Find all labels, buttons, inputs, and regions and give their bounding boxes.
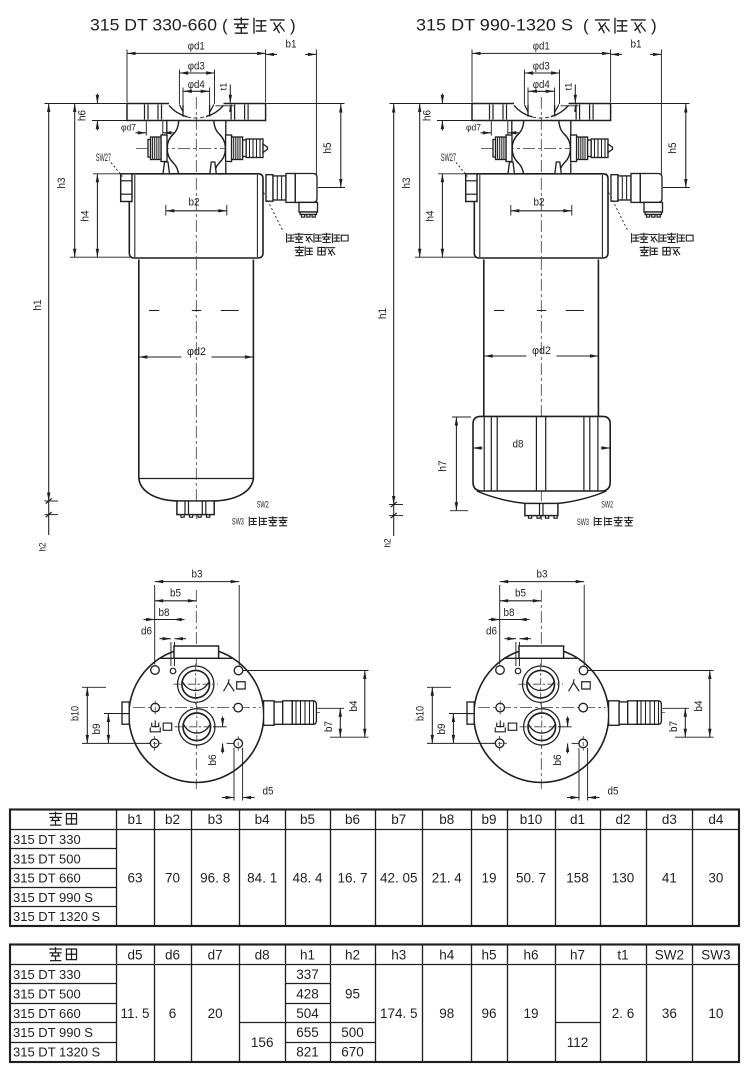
svg-text:b8: b8: [439, 812, 454, 827]
svg-text:315 DT 990 S: 315 DT 990 S: [13, 1025, 93, 1040]
svg-text:98: 98: [439, 1006, 454, 1021]
svg-text:φd1: φd1: [533, 41, 550, 53]
svg-text:(: (: [222, 16, 228, 35]
svg-text:6: 6: [169, 1006, 177, 1021]
svg-text:h7: h7: [570, 948, 585, 963]
svg-text:504: 504: [296, 1006, 319, 1021]
svg-text:11. 5: 11. 5: [120, 1006, 149, 1021]
svg-text:b5: b5: [300, 812, 315, 827]
svg-text:d6: d6: [141, 625, 152, 637]
svg-text:SW2: SW2: [601, 499, 613, 509]
svg-text:b10: b10: [520, 812, 543, 827]
svg-text:315 DT 660: 315 DT 660: [13, 1006, 81, 1021]
svg-text:h2: h2: [345, 948, 360, 963]
svg-text:156: 156: [251, 1035, 274, 1050]
svg-text:315 DT 330: 315 DT 330: [13, 832, 81, 847]
svg-text:337: 337: [296, 967, 319, 982]
svg-text:16. 7: 16. 7: [337, 870, 367, 885]
svg-text:b2: b2: [189, 197, 200, 209]
svg-text:h4: h4: [80, 211, 92, 222]
svg-text:b8: b8: [159, 607, 170, 619]
svg-text:SW2: SW2: [655, 948, 684, 963]
svg-text:b5: b5: [515, 588, 526, 600]
svg-text:315 DT 1320 S: 315 DT 1320 S: [13, 909, 101, 924]
svg-text:φd4: φd4: [533, 79, 550, 91]
svg-text:φd3: φd3: [533, 61, 550, 73]
svg-text:h1: h1: [32, 300, 44, 311]
svg-text:20: 20: [208, 1006, 223, 1021]
svg-text:d5: d5: [608, 786, 619, 798]
svg-text:b3: b3: [192, 569, 203, 581]
svg-text:d5: d5: [127, 948, 142, 963]
svg-text:SW3: SW3: [232, 517, 244, 527]
svg-text:(: (: [583, 16, 589, 35]
svg-text:315 DT 990 S: 315 DT 990 S: [13, 890, 93, 905]
svg-text:φd2: φd2: [187, 346, 206, 358]
svg-text:36: 36: [662, 1006, 677, 1021]
svg-text:315 DT 500: 315 DT 500: [13, 986, 81, 1001]
svg-text:b6: b6: [207, 755, 219, 766]
svg-text:428: 428: [296, 986, 319, 1001]
svg-text:b1: b1: [286, 39, 297, 51]
svg-text:84. 1: 84. 1: [247, 870, 277, 885]
svg-text:d8: d8: [513, 439, 524, 451]
svg-text:d2: d2: [615, 812, 630, 827]
svg-text:b10: b10: [415, 706, 427, 721]
svg-text:b10: b10: [70, 706, 82, 721]
svg-text:d7: d7: [208, 948, 223, 963]
svg-text:t1: t1: [617, 948, 628, 963]
svg-text:d1: d1: [570, 812, 585, 827]
svg-text:h5: h5: [322, 143, 334, 154]
svg-text:b9: b9: [436, 724, 448, 735]
svg-text:158: 158: [566, 870, 589, 885]
svg-text:b2: b2: [534, 197, 545, 209]
svg-text:70: 70: [165, 870, 180, 885]
svg-text:50. 7: 50. 7: [516, 870, 546, 885]
svg-text:t1: t1: [564, 83, 574, 91]
svg-text:φd1: φd1: [188, 41, 205, 53]
svg-text:h4: h4: [425, 211, 437, 222]
svg-text:h5: h5: [667, 143, 679, 154]
svg-text:h2: h2: [383, 539, 393, 548]
svg-text:2. 6: 2. 6: [612, 1006, 635, 1021]
svg-text:h2: h2: [38, 543, 48, 552]
svg-text:b5: b5: [170, 588, 181, 600]
svg-text:SW3: SW3: [701, 948, 730, 963]
svg-text:95: 95: [345, 986, 360, 1001]
svg-text:b7: b7: [323, 721, 335, 732]
svg-text:96. 8: 96. 8: [200, 870, 230, 885]
svg-text:b1: b1: [127, 812, 142, 827]
svg-text:b3: b3: [537, 569, 548, 581]
svg-text:): ): [651, 16, 657, 35]
svg-text:h3: h3: [401, 178, 413, 189]
svg-text:21. 4: 21. 4: [432, 870, 463, 885]
svg-text:): ): [290, 16, 296, 35]
svg-text:φd2: φd2: [532, 345, 551, 357]
svg-text:d8: d8: [255, 948, 270, 963]
svg-text:d6: d6: [486, 625, 497, 637]
svg-text:h1: h1: [300, 948, 315, 963]
svg-text:96: 96: [481, 1006, 496, 1021]
svg-text:b6: b6: [552, 755, 564, 766]
svg-text:SW27: SW27: [441, 152, 456, 164]
svg-text:b3: b3: [208, 812, 223, 827]
svg-text:41: 41: [662, 870, 677, 885]
svg-text:130: 130: [612, 870, 635, 885]
svg-text:315 DT 990-1320 S: 315 DT 990-1320 S: [416, 16, 573, 35]
svg-text:h6: h6: [77, 110, 89, 121]
svg-text:b6: b6: [345, 812, 360, 827]
svg-text:h6: h6: [422, 110, 434, 121]
svg-text:d6: d6: [165, 948, 180, 963]
svg-text:h3: h3: [56, 178, 68, 189]
svg-text:670: 670: [341, 1045, 364, 1060]
svg-text:t1: t1: [219, 83, 229, 91]
svg-text:b7: b7: [668, 721, 680, 732]
svg-text:h3: h3: [391, 948, 406, 963]
svg-text:63: 63: [127, 870, 142, 885]
svg-text:655: 655: [296, 1025, 319, 1040]
svg-text:d4: d4: [708, 812, 724, 827]
svg-text:b8: b8: [504, 607, 515, 619]
svg-text:b4: b4: [348, 701, 360, 712]
svg-text:φd3: φd3: [188, 61, 205, 73]
svg-text:19: 19: [481, 870, 496, 885]
svg-text:174. 5: 174. 5: [380, 1006, 418, 1021]
svg-text:φd7: φd7: [121, 122, 136, 132]
svg-text:φd7: φd7: [466, 122, 481, 132]
svg-text:b2: b2: [165, 812, 180, 827]
svg-text:h5: h5: [481, 948, 496, 963]
svg-text:h1: h1: [377, 308, 389, 319]
svg-text:b4: b4: [255, 812, 271, 827]
svg-text:φd4: φd4: [188, 79, 205, 91]
svg-text:SW2: SW2: [257, 499, 269, 509]
svg-text:b4: b4: [693, 701, 705, 712]
svg-text:315 DT 1320 S: 315 DT 1320 S: [13, 1045, 101, 1060]
svg-text:10: 10: [708, 1006, 723, 1021]
svg-text:b9: b9: [481, 812, 496, 827]
svg-text:19: 19: [523, 1006, 538, 1021]
svg-text:315 DT 330-660: 315 DT 330-660: [90, 16, 217, 35]
svg-text:h6: h6: [523, 948, 538, 963]
svg-text:d3: d3: [662, 812, 677, 827]
svg-text:315 DT 500: 315 DT 500: [13, 851, 81, 866]
svg-text:42. 05: 42. 05: [380, 870, 418, 885]
svg-text:h4: h4: [439, 948, 455, 963]
svg-text:d5: d5: [263, 786, 274, 798]
svg-text:SW27: SW27: [96, 152, 111, 164]
svg-text:500: 500: [341, 1025, 364, 1040]
svg-text:b7: b7: [391, 812, 406, 827]
svg-text:821: 821: [296, 1045, 319, 1060]
svg-text:b9: b9: [91, 724, 103, 735]
svg-text:48. 4: 48. 4: [292, 870, 323, 885]
svg-text:SW3: SW3: [577, 517, 589, 527]
svg-text:h7: h7: [437, 461, 449, 472]
svg-text:30: 30: [708, 870, 723, 885]
svg-text:315 DT 330: 315 DT 330: [13, 967, 81, 982]
svg-text:112: 112: [567, 1035, 589, 1050]
svg-text:315 DT 660: 315 DT 660: [13, 871, 81, 886]
svg-text:b1: b1: [631, 39, 642, 51]
